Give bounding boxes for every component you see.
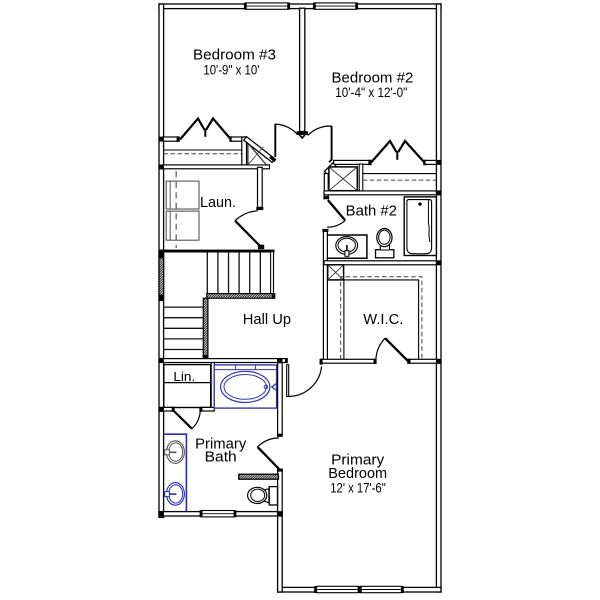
svg-text:Bedroom #3: Bedroom #3 — [193, 47, 276, 63]
svg-text:Laun.: Laun. — [200, 195, 236, 211]
svg-text:Lin.: Lin. — [173, 369, 195, 384]
svg-text:10'-4" x 12'-0": 10'-4" x 12'-0" — [335, 85, 407, 100]
svg-text:Bath: Bath — [205, 449, 237, 465]
svg-text:10'-9" x 10': 10'-9" x 10' — [203, 63, 259, 78]
svg-text:W.I.C.: W.I.C. — [363, 312, 403, 328]
svg-text:Hall Up: Hall Up — [243, 312, 291, 328]
svg-text:12' x 17'-6": 12' x 17'-6" — [330, 481, 386, 496]
svg-text:Bath #2: Bath #2 — [346, 203, 397, 219]
